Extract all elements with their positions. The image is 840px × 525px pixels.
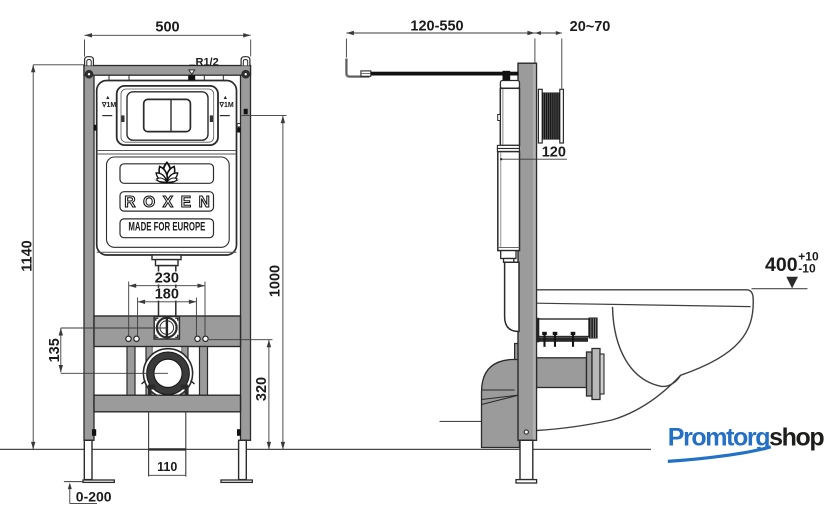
svg-text:110: 110	[157, 460, 177, 474]
svg-text:1M: 1M	[107, 102, 117, 109]
svg-text:230: 230	[155, 270, 179, 286]
svg-text:120: 120	[542, 144, 566, 160]
svg-text:0-200: 0-200	[76, 489, 112, 505]
svg-text:20~70: 20~70	[570, 19, 611, 35]
svg-text:R1/2: R1/2	[196, 57, 219, 69]
svg-text:500: 500	[155, 19, 179, 35]
svg-text:Promtorgshop: Promtorgshop	[668, 424, 825, 452]
svg-text:-10: -10	[798, 262, 816, 276]
svg-text:120-550: 120-550	[410, 19, 463, 35]
svg-text:MADE FOR EUROPE: MADE FOR EUROPE	[128, 220, 205, 234]
svg-text:1M: 1M	[224, 102, 234, 109]
svg-text:400: 400	[765, 254, 798, 276]
svg-text:320: 320	[254, 377, 270, 401]
svg-text:135: 135	[47, 338, 63, 362]
svg-text:180: 180	[155, 286, 179, 302]
svg-text:1000: 1000	[268, 265, 284, 297]
svg-text:1140: 1140	[20, 240, 36, 271]
svg-text:ROXEN: ROXEN	[124, 194, 217, 211]
